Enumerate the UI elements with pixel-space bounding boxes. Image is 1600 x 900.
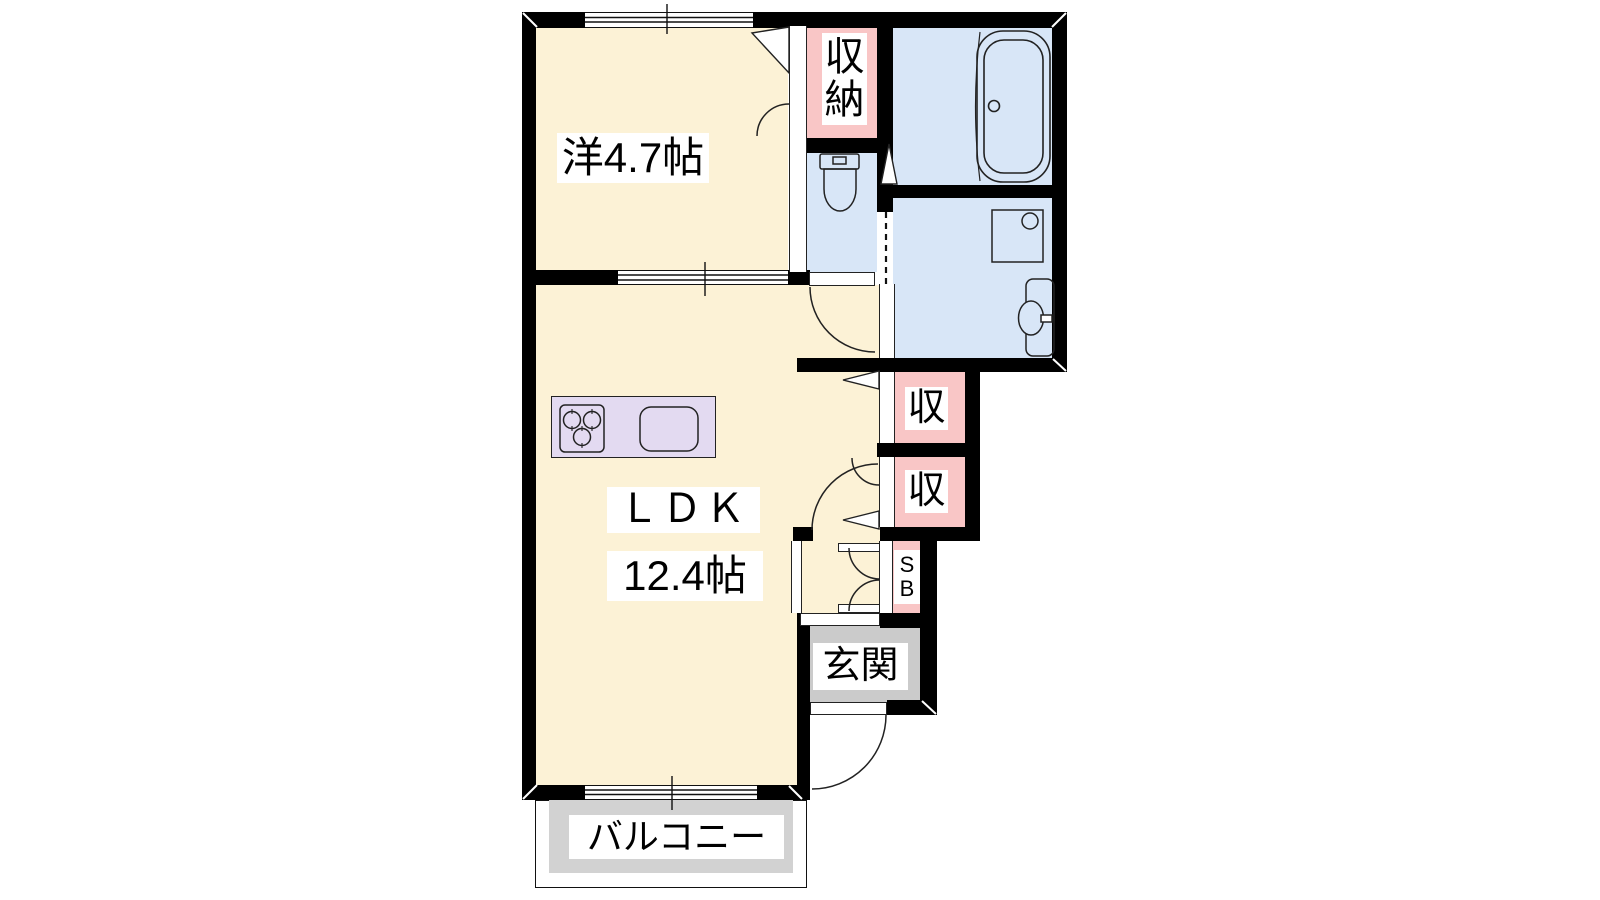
washing-machine-icon — [992, 210, 1043, 262]
ldk-label-text: ＬＤＫ — [619, 488, 748, 531]
western-room-label: 洋4.7帖 — [557, 133, 709, 183]
stove-icon — [560, 405, 604, 452]
closet-label-char-2: 納 — [825, 79, 865, 122]
shoe-box-arc-bottom — [849, 580, 880, 611]
storage-lower-small-arc — [852, 458, 879, 485]
ldk-area-label-text: 12.4帖 — [623, 553, 747, 598]
storage-upper-folding-marker — [843, 371, 879, 389]
balcony-label-text: バルコニー — [587, 818, 766, 857]
vanity-sink-icon — [1019, 279, 1055, 356]
kitchen-sink-icon — [640, 407, 698, 451]
plan-linework — [0, 0, 1600, 900]
bathtub-icon — [976, 31, 1051, 182]
floor-plan-canvas: 洋4.7帖 ＬＤＫ 12.4帖 収 納 収 収 S B 玄関 バルコニー — [0, 0, 1600, 900]
closet-label: 収 納 — [822, 33, 867, 125]
balcony-label: バルコニー — [569, 815, 784, 859]
closet-label-char-1: 収 — [825, 36, 865, 79]
bathroom-folding-marker — [881, 144, 897, 184]
closet-folding-marker — [752, 27, 789, 73]
toilet-icon — [820, 154, 859, 211]
storage-lower-folding-marker — [843, 511, 879, 529]
ldk-label: ＬＤＫ — [607, 487, 760, 533]
western-room-door-arc — [757, 104, 789, 136]
storage-upper-label-text: 収 — [907, 388, 945, 429]
entrance-label: 玄関 — [813, 643, 908, 690]
toilet-door-arc — [810, 287, 875, 352]
storage-upper-label: 収 — [905, 387, 948, 430]
entrance-label-text: 玄関 — [822, 646, 898, 687]
storage-lower-label-text: 収 — [907, 471, 945, 512]
ldk-area-label: 12.4帖 — [607, 551, 763, 601]
front-door-arc — [812, 715, 886, 789]
shoe-box-label: S B — [894, 550, 920, 604]
storage-lower-label: 収 — [905, 470, 948, 513]
shoe-box-arc-top — [849, 548, 880, 579]
western-room-label-text: 洋4.7帖 — [562, 135, 704, 180]
shoe-box-label-char-2: B — [900, 577, 915, 601]
shoe-box-label-char-1: S — [900, 553, 915, 577]
